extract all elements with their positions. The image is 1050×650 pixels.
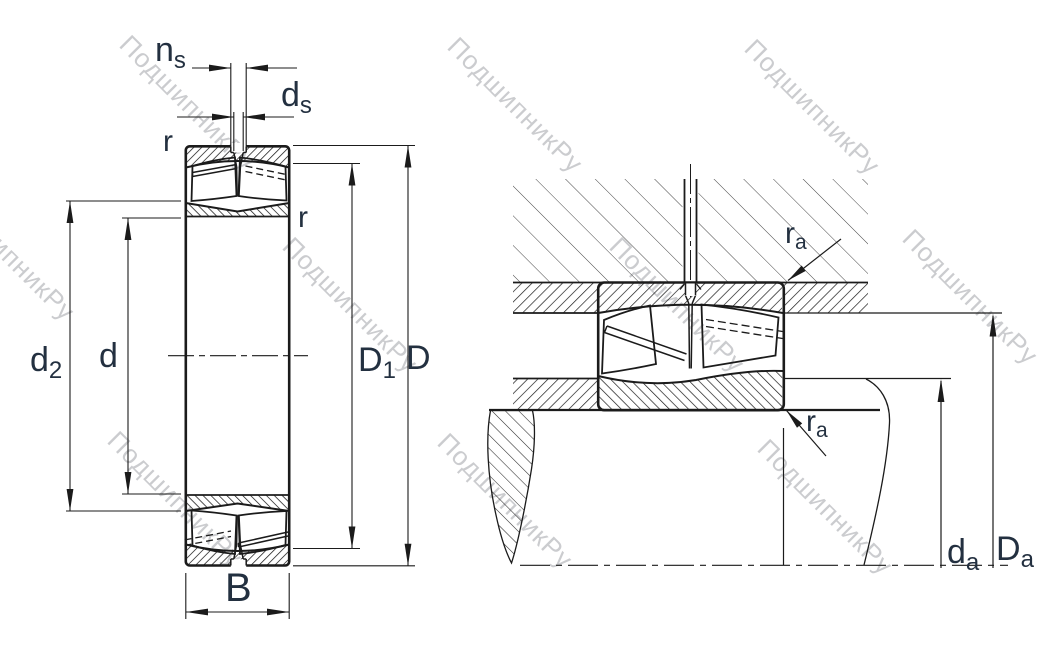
shaft-shoulder-hatch	[513, 379, 598, 411]
label-d2: d2	[30, 341, 62, 384]
cage-bar	[605, 326, 687, 361]
label-Da: Da	[996, 530, 1035, 573]
cage-bar	[239, 532, 289, 547]
label-ds: ds	[281, 76, 312, 119]
label-ns: ns	[155, 31, 186, 74]
bearing-technical-drawing: ПодшипникРу ПодшипникРу ПодшипникРу Подш…	[0, 0, 1050, 650]
label-da: da	[947, 533, 980, 576]
cage-bar	[193, 165, 237, 177]
label-r-top: r	[163, 125, 173, 158]
watermark: ПодшипникРу	[897, 223, 1045, 371]
roller	[602, 306, 656, 374]
inner-ring-hatch	[599, 371, 782, 409]
lubrication-groove-top	[231, 143, 246, 153]
drawing-canvas: ПодшипникРу ПодшипникРу ПодшипникРу Подш…	[0, 0, 1050, 650]
right-view-mounted-bearing: ra ra da Da	[488, 162, 1035, 576]
housing-grease-hole	[683, 162, 699, 297]
hidden-cage-edge	[246, 166, 289, 181]
label-D: D	[406, 339, 431, 377]
watermark: ПодшипникРу	[442, 31, 590, 179]
bearing-hatching	[599, 284, 782, 410]
watermark: ПодшипникРу	[739, 33, 887, 181]
label-d: d	[99, 337, 118, 375]
label-r-right: r	[298, 201, 308, 234]
watermark: ПодшипникРу	[277, 231, 425, 379]
label-B: B	[225, 566, 252, 610]
